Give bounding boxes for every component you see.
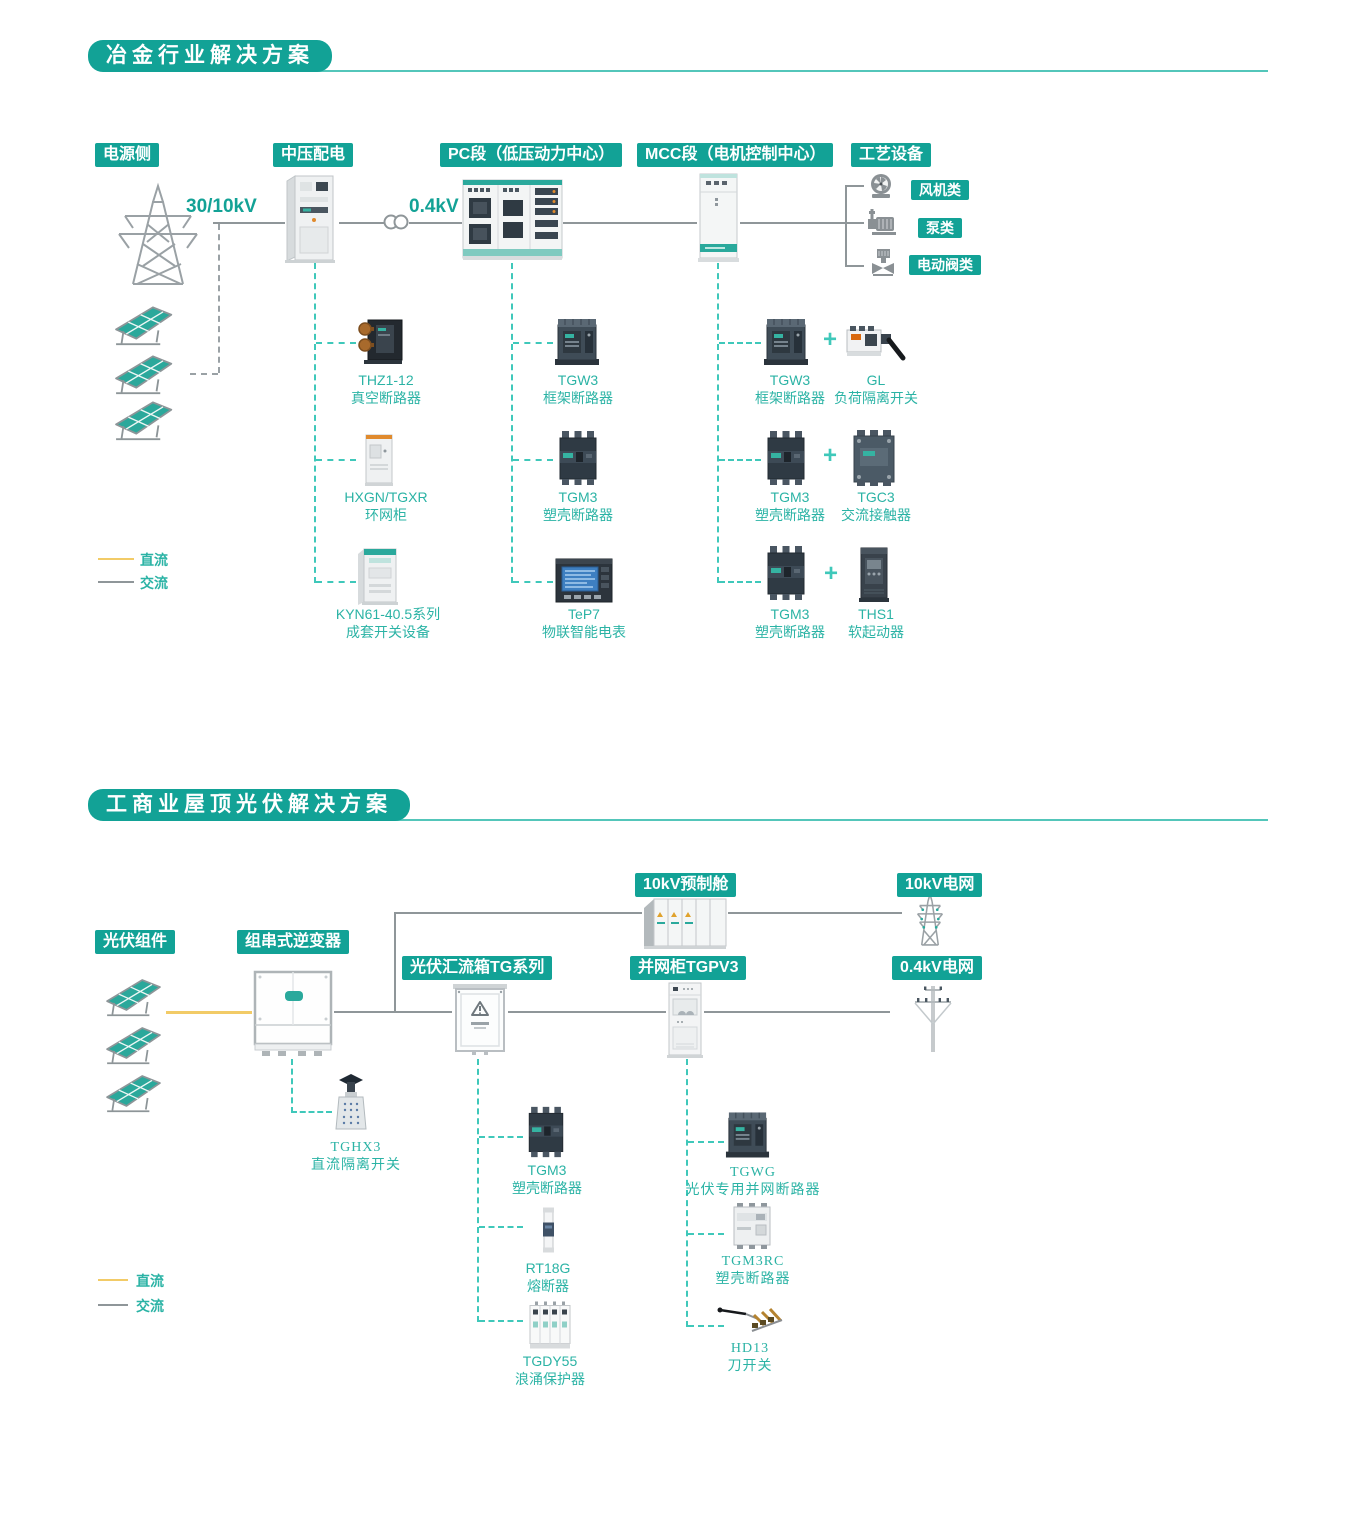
product-branch [316, 342, 356, 344]
tgdy55-spd-image [529, 1301, 571, 1351]
legend-dc-label: 直流 [140, 550, 168, 570]
bus-line [740, 222, 847, 224]
product-label-tgw3: TGW3 框架断路器 [543, 371, 613, 407]
fan-icon [866, 172, 896, 200]
pump-icon [864, 207, 898, 237]
0-4kv-grid-pole-icon [911, 982, 955, 1054]
product-name: 塑壳断路器 [755, 623, 825, 641]
product-label-hd13: HD13 刀开关 [728, 1340, 773, 1376]
tgm3-mccb-image [766, 429, 806, 487]
product-branch [719, 342, 761, 344]
ac-line-tgpv-to-pole [704, 1011, 890, 1013]
mcc-cabinet-image [697, 172, 740, 263]
product-model: KYN61-40.5系列 [336, 605, 440, 623]
stage-badge-pc-section: PC段（低压动力中心） [440, 143, 622, 167]
product-label-tep7: TeP7 物联智能电表 [542, 605, 626, 641]
product-name: 光伏专用并网断路器 [686, 1182, 821, 1200]
product-model: TGM3RC [716, 1253, 791, 1271]
product-name: 真空断路器 [351, 389, 421, 407]
product-model: TGWG [686, 1164, 821, 1182]
mcc-products-dashed-line [717, 263, 719, 583]
product-branch [316, 459, 356, 461]
product-model: TGW3 [543, 371, 613, 389]
product-name: 刀开关 [728, 1358, 773, 1376]
stage-badge-power-side: 电源侧 [95, 143, 159, 167]
product-model: TGC3 [841, 488, 911, 506]
page: 冶金行业解决方案 电源侧 中压配电 PC段（低压动力中心） MCC段（电机控制中… [0, 0, 1350, 1528]
tgwg-pv-breaker-image [724, 1107, 771, 1161]
stage-badge-pv-combiner-box: 光伏汇流箱TG系列 [402, 956, 552, 980]
product-branch [479, 1226, 523, 1228]
product-branch [688, 1233, 724, 1235]
pv-branch-dashed-line [218, 224, 220, 373]
solar-panel-icon [96, 973, 164, 1017]
product-branch [316, 581, 356, 583]
product-branch [513, 459, 553, 461]
load-badge-pumps: 泵类 [918, 218, 962, 238]
product-name: 环网柜 [344, 506, 427, 524]
ac-line-combiner-to-tgpv [508, 1011, 666, 1013]
tgm3-mccb-image [524, 1105, 568, 1159]
product-label-tgm3: TGM3 塑壳断路器 [755, 488, 825, 524]
solar-panel-icon [96, 1069, 164, 1113]
solar-panel-icon [96, 1021, 164, 1065]
hxgn-ring-main-unit-image [364, 431, 394, 488]
tgw3-acb-image [762, 315, 810, 367]
product-name: 框架断路器 [543, 389, 613, 407]
stage-badge-mv-distribution: 中压配电 [273, 143, 353, 167]
load-badge-fans: 风机类 [911, 180, 969, 200]
loads-bracket-stub [847, 222, 864, 224]
combiner-products-dashed-line [477, 1059, 479, 1322]
mv-products-dashed-line [314, 263, 316, 583]
gl-load-isolation-switch-image [845, 322, 907, 366]
product-name: 塑壳断路器 [716, 1271, 791, 1289]
product-model: HXGN/TGXR [344, 488, 427, 506]
product-model: HD13 [728, 1340, 773, 1358]
10kv-grid-tower-icon [910, 889, 950, 947]
product-model: RT18G [526, 1259, 571, 1277]
ac-line-cabin-to-grid [728, 912, 902, 914]
stage-badge-pv-modules: 光伏组件 [95, 930, 175, 954]
string-inverter-image [252, 969, 334, 1059]
product-model: TGDY55 [515, 1352, 585, 1370]
stage-badge-0-4kv-grid: 0.4kV电网 [892, 956, 982, 980]
thz1-12-breaker-image [356, 316, 404, 366]
transmission-tower-icon [95, 176, 221, 288]
legend-ac-label: 交流 [136, 1296, 164, 1316]
legend-dc-line [98, 1279, 128, 1281]
inverter-product-branch [291, 1111, 332, 1113]
product-label-kyn61: KYN61-40.5系列 成套开关设备 [336, 605, 440, 641]
product-branch [513, 342, 553, 344]
bus-line [409, 222, 462, 224]
product-branch [479, 1320, 523, 1322]
product-model: TGHX3 [311, 1139, 401, 1157]
product-model: THZ1-12 [351, 371, 421, 389]
stage-badge-10kv-prefab-cabin: 10kV预制舱 [635, 873, 736, 897]
tgm3-mccb-image [558, 429, 598, 487]
legend-ac-label: 交流 [140, 573, 168, 593]
voltage-label-0-4kv: 0.4kV [409, 196, 459, 218]
pc-switchgear-cabinet-image [462, 176, 563, 263]
tghx3-dc-isolator-image [333, 1072, 369, 1132]
legend-dc-line [98, 558, 134, 560]
solar-panel-icon [104, 395, 176, 441]
pc-products-dashed-line [511, 263, 513, 583]
rt18g-fuse-image [539, 1206, 558, 1254]
product-label-tgwg: TGWG 光伏专用并网断路器 [686, 1164, 821, 1200]
ac-line-to-cabin [394, 912, 642, 914]
product-branch [719, 581, 761, 583]
product-label-tgw3: TGW3 框架断路器 [755, 371, 825, 407]
product-label-tghx3: TGHX3 直流隔离开关 [311, 1139, 401, 1175]
product-model: TGM3 [755, 488, 825, 506]
product-model: GL [834, 371, 918, 389]
product-model: TGM3 [543, 488, 613, 506]
inverter-product-dashed-line [291, 1059, 293, 1113]
product-name: 框架断路器 [755, 389, 825, 407]
tgpv3-grid-tie-cabinet-image [666, 982, 704, 1059]
product-model: TGW3 [755, 371, 825, 389]
product-name: 直流隔离开关 [311, 1157, 401, 1175]
legend-dc-label: 直流 [136, 1271, 164, 1291]
section1-title-rule [200, 70, 1268, 72]
tgc3-contactor-image [851, 428, 897, 488]
motor-valve-icon [869, 247, 897, 277]
stage-badge-string-inverter: 组串式逆变器 [237, 930, 349, 954]
plus-sign: + [823, 444, 837, 468]
stage-badge-process-equipment: 工艺设备 [851, 143, 931, 167]
kyn61-switchgear-image [355, 544, 399, 606]
product-branch [688, 1141, 724, 1143]
load-badge-motor-valves: 电动阀类 [909, 255, 981, 275]
transformer-icon [383, 214, 409, 230]
tgm3-mccb-image [766, 544, 806, 602]
product-name: 软起动器 [848, 623, 904, 641]
bus-line [339, 222, 385, 224]
10kv-prefab-cabin-image [642, 896, 728, 950]
product-model: TGM3 [512, 1161, 582, 1179]
bus-line [563, 222, 697, 224]
product-label-tgm3rc: TGM3RC 塑壳断路器 [716, 1253, 791, 1289]
plus-sign: + [824, 562, 838, 586]
stage-badge-grid-tie-cabinet-tgpv3: 并网柜TGPV3 [630, 956, 746, 980]
legend-ac-line [98, 1304, 128, 1306]
mv-switchgear-cabinet-image [283, 173, 337, 263]
solar-panel-icon [104, 349, 176, 395]
product-name: 浪涌保护器 [515, 1370, 585, 1388]
tgm3rc-mccb-image [732, 1203, 772, 1250]
product-name: 负荷隔离开关 [834, 389, 918, 407]
legend-ac-line [98, 581, 134, 583]
ac-riser-to-cabin [394, 913, 396, 1013]
section2-title: 工商业屋顶光伏解决方案 [88, 789, 410, 821]
loads-bracket-stub [845, 265, 864, 267]
loads-bracket-stub [845, 185, 864, 187]
product-label-tgm3: TGM3 塑壳断路器 [543, 488, 613, 524]
product-name: 交流接触器 [841, 506, 911, 524]
product-label-hxgn-tgxr: HXGN/TGXR 环网柜 [344, 488, 427, 524]
product-name: 物联智能电表 [542, 623, 626, 641]
stage-badge-10kv-grid: 10kV电网 [897, 873, 982, 897]
product-model: TeP7 [542, 605, 626, 623]
product-label-tgm3: TGM3 塑壳断路器 [755, 605, 825, 641]
product-name: 塑壳断路器 [543, 506, 613, 524]
product-label-rt18g: RT18G 熔断器 [526, 1259, 571, 1295]
tep7-smart-meter-image [555, 557, 613, 604]
product-branch [479, 1136, 523, 1138]
product-name: 塑壳断路器 [755, 506, 825, 524]
stage-badge-mcc-section: MCC段（电机控制中心） [637, 143, 833, 167]
loads-bracket [845, 185, 847, 267]
dc-line-pv-to-inverter [166, 1011, 252, 1014]
product-branch [719, 459, 761, 461]
pv-combiner-box-image [452, 980, 508, 1058]
solar-panel-icon [104, 300, 176, 346]
plus-sign: + [823, 328, 837, 352]
product-model: TGM3 [755, 605, 825, 623]
ac-line-inverter-to-combiner [334, 1011, 452, 1013]
bus-line [213, 222, 285, 224]
product-label-gl: GL 负荷隔离开关 [834, 371, 918, 407]
section1-title: 冶金行业解决方案 [88, 40, 332, 72]
product-label-thz1-12: THZ1-12 真空断路器 [351, 371, 421, 407]
ths1-soft-starter-image [858, 546, 890, 603]
hd13-knife-switch-image [716, 1302, 784, 1338]
product-branch [513, 581, 553, 583]
product-name: 熔断器 [526, 1277, 571, 1295]
product-name: 成套开关设备 [336, 623, 440, 641]
tgw3-acb-image [553, 315, 601, 367]
product-label-tgc3: TGC3 交流接触器 [841, 488, 911, 524]
pv-branch-dashed-line [190, 373, 218, 375]
product-name: 塑壳断路器 [512, 1179, 582, 1197]
product-label-tgdy55: TGDY55 浪涌保护器 [515, 1352, 585, 1388]
product-model: THS1 [848, 605, 904, 623]
product-label-tgm3: TGM3 塑壳断路器 [512, 1161, 582, 1197]
product-label-ths1: THS1 软起动器 [848, 605, 904, 641]
